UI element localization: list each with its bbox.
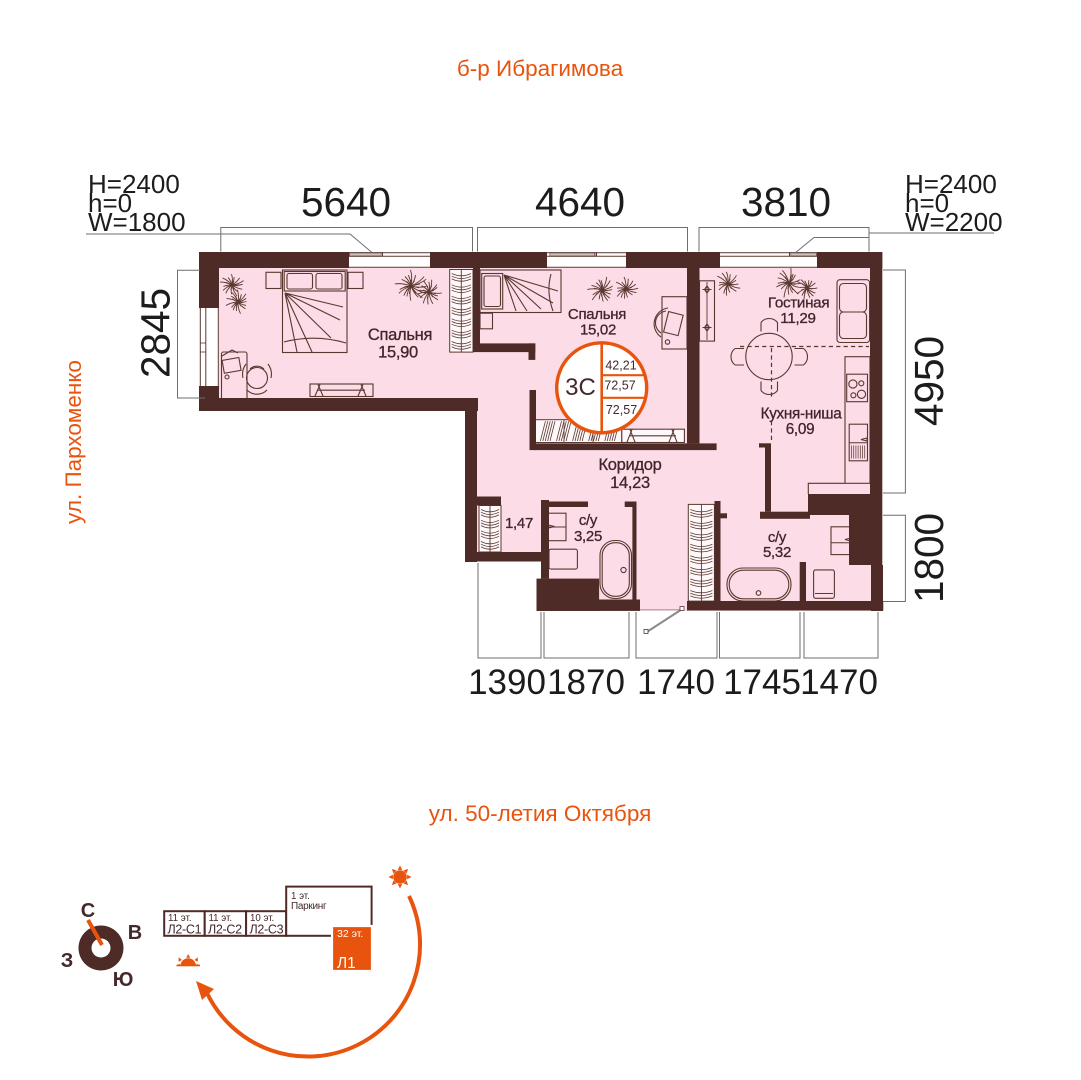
svg-text:Гостиная: Гостиная — [768, 295, 829, 312]
svg-text:С: С — [81, 900, 95, 922]
svg-text:Коридор: Коридор — [598, 456, 661, 474]
svg-text:б-р Ибрагимова: б-р Ибрагимова — [457, 56, 624, 81]
svg-text:ул. 50-летия Октября: ул. 50-летия Октября — [429, 801, 652, 826]
svg-text:5640: 5640 — [301, 179, 391, 225]
svg-text:З: З — [61, 950, 74, 972]
svg-text:1740: 1740 — [637, 663, 715, 702]
svg-text:1870: 1870 — [547, 663, 625, 702]
svg-text:3,25: 3,25 — [574, 528, 602, 545]
svg-text:6,09: 6,09 — [786, 421, 815, 438]
svg-text:W=1800: W=1800 — [88, 207, 186, 237]
svg-text:5,32: 5,32 — [763, 544, 791, 561]
svg-text:11,29: 11,29 — [780, 310, 815, 327]
svg-text:1745: 1745 — [723, 663, 801, 702]
svg-text:4640: 4640 — [535, 179, 625, 225]
svg-text:4950: 4950 — [906, 336, 952, 426]
svg-text:ул. Пархоменко: ул. Пархоменко — [61, 360, 86, 524]
svg-text:1800: 1800 — [906, 513, 952, 603]
svg-text:15,90: 15,90 — [378, 344, 418, 362]
svg-text:W=2200: W=2200 — [905, 207, 1003, 237]
svg-text:Паркинг: Паркинг — [291, 901, 327, 912]
svg-text:1,47: 1,47 — [505, 515, 533, 532]
svg-text:В: В — [128, 922, 142, 944]
svg-text:Спальня: Спальня — [568, 306, 626, 323]
svg-text:72,57: 72,57 — [606, 403, 637, 417]
svg-text:Кухня-ниша: Кухня-ниша — [761, 406, 843, 423]
svg-text:42,21: 42,21 — [605, 359, 636, 373]
svg-text:1390: 1390 — [468, 663, 546, 702]
svg-text:14,23: 14,23 — [610, 474, 650, 492]
svg-text:3810: 3810 — [741, 179, 831, 225]
svg-text:1470: 1470 — [800, 663, 878, 702]
svg-text:Л1: Л1 — [337, 955, 356, 972]
svg-text:2845: 2845 — [133, 288, 179, 378]
svg-text:Л2-С1: Л2-С1 — [168, 923, 202, 937]
svg-text:с/у: с/у — [579, 512, 598, 529]
svg-text:Л2-С3: Л2-С3 — [250, 923, 284, 937]
svg-text:Спальня: Спальня — [368, 326, 432, 344]
svg-text:72,57: 72,57 — [604, 379, 635, 393]
svg-text:32 эт.: 32 эт. — [337, 928, 363, 940]
svg-text:3С: 3С — [565, 374, 596, 401]
svg-text:Ю: Ю — [113, 969, 134, 991]
svg-text:Л2-С2: Л2-С2 — [208, 923, 242, 937]
svg-text:15,02: 15,02 — [580, 322, 616, 339]
